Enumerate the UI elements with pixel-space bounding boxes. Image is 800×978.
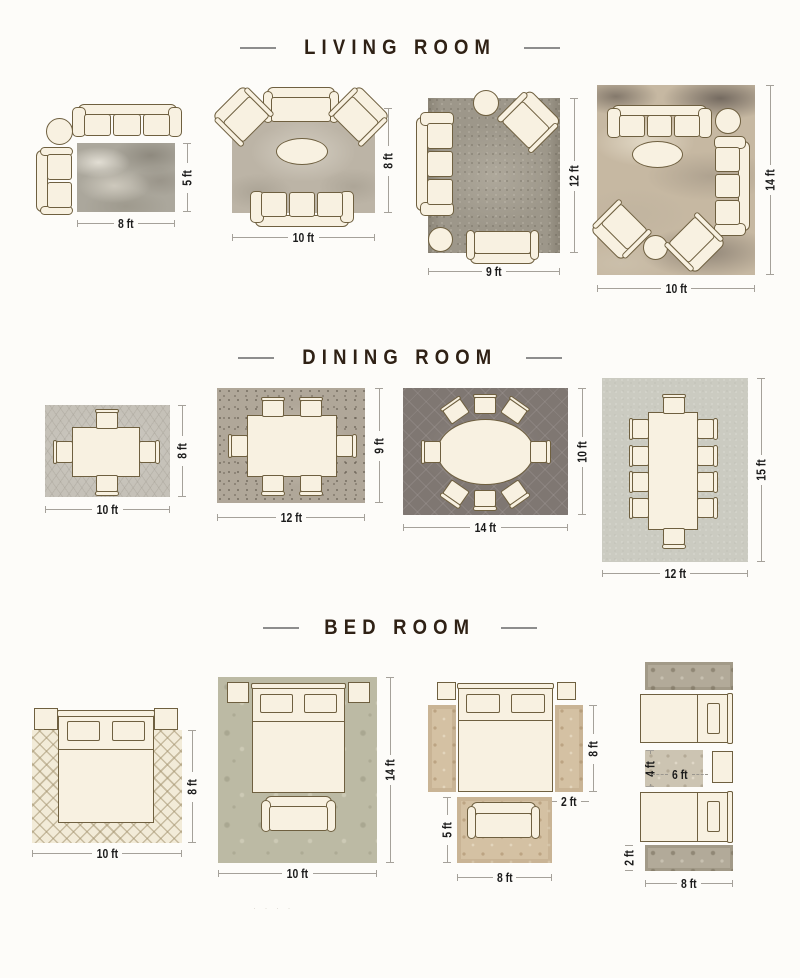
- section-title-dining-room: DINING ROOM: [0, 346, 800, 370]
- pillow: [511, 694, 544, 713]
- three-seat-sofa: [72, 104, 182, 138]
- dining-table: [247, 415, 337, 477]
- headboard: [727, 791, 733, 843]
- watermark: · · · ·: [253, 903, 294, 913]
- living-rug-8x5: [77, 143, 175, 212]
- height-dimension: 10 ft: [574, 388, 590, 515]
- bench-rug-height-dimension: 5 ft: [439, 797, 455, 863]
- nightstand: [227, 682, 249, 703]
- headboard: [457, 683, 554, 689]
- width-dimension: 10 ft: [218, 866, 377, 880]
- queen-bed: [458, 683, 553, 792]
- section-title-bed-room: BED ROOM: [0, 616, 800, 640]
- dining-chair: [632, 472, 649, 492]
- dining-chair: [530, 441, 547, 463]
- title-dash-left: [240, 47, 276, 50]
- width-dimension: 14 ft: [403, 520, 568, 534]
- height-dimension: 12 ft: [566, 98, 582, 253]
- nightstand: [348, 682, 370, 703]
- pillow: [707, 801, 721, 833]
- three-seat-sofa: [607, 105, 712, 139]
- section-title-text: LIVING ROOM: [304, 36, 496, 60]
- rug-size-guide-infographic: LIVING ROOM 5 ft 8 ft 8 ft 10 ft: [0, 0, 800, 978]
- dining-chair: [663, 528, 685, 545]
- runner-length-dimension: 8 ft: [645, 876, 733, 890]
- nightstand: [34, 708, 58, 730]
- height-dimension: 9 ft: [371, 388, 387, 503]
- dining-chair: [262, 400, 284, 417]
- dining-chair: [697, 419, 714, 439]
- nightstand: [437, 682, 456, 700]
- dining-chair: [300, 475, 322, 492]
- dining-chair: [424, 441, 441, 463]
- dining-chair: [632, 446, 649, 466]
- height-dimension: 14 ft: [382, 677, 398, 863]
- dining-chair: [336, 435, 353, 457]
- three-seat-sofa: [713, 136, 750, 236]
- round-side-table: [473, 90, 499, 116]
- runner-height-dimension: 8 ft: [585, 705, 601, 792]
- round-side-table: [715, 108, 741, 134]
- title-dash-right: [524, 47, 560, 50]
- runner-width-dimension: 2 ft: [621, 845, 637, 871]
- height-dimension: 8 ft: [184, 730, 200, 843]
- nightstand: [712, 751, 733, 783]
- loveseat: [263, 87, 339, 124]
- round-side-table: [428, 227, 453, 252]
- width-dimension: 12 ft: [602, 566, 748, 580]
- dining-chair: [96, 412, 118, 429]
- dining-chair: [697, 472, 714, 492]
- dining-chair: [56, 441, 73, 463]
- height-dimension: 15 ft: [753, 378, 769, 562]
- three-seat-sofa: [416, 112, 455, 216]
- bench-rug-width-dimension: 8 ft: [457, 870, 552, 884]
- pillow: [304, 694, 337, 713]
- nightstand: [154, 708, 178, 730]
- twin-bed: [640, 792, 733, 842]
- dining-chair: [632, 498, 649, 518]
- runner-width-dimension: 2 ft: [549, 794, 589, 808]
- dining-table: [648, 412, 698, 530]
- dining-chair: [300, 400, 322, 417]
- dining-chair: [474, 490, 496, 507]
- height-dimension: 5 ft: [179, 143, 195, 212]
- twin-bed: [640, 694, 733, 743]
- width-dimension: 10 ft: [45, 502, 170, 516]
- headboard: [251, 683, 346, 689]
- queen-bed: [252, 683, 345, 793]
- width-dimension: 10 ft: [232, 230, 375, 244]
- dining-chair: [231, 435, 248, 457]
- height-dimension: 14 ft: [762, 85, 778, 275]
- dining-chair: [474, 397, 496, 414]
- dining-chair: [139, 441, 156, 463]
- oval-coffee-table: [632, 141, 683, 168]
- bedroom-bench: [261, 796, 336, 833]
- nightstand: [557, 682, 576, 700]
- three-seat-sofa: [250, 190, 354, 227]
- section-title-text: BED ROOM: [325, 616, 476, 640]
- oval-dining-table: [437, 419, 534, 485]
- headboard: [727, 693, 733, 744]
- rug-width-dimension: 6 ft: [652, 767, 708, 781]
- title-dash-left: [238, 357, 274, 360]
- dining-chair: [697, 446, 714, 466]
- dining-chair: [632, 419, 649, 439]
- dining-chair: [663, 397, 685, 414]
- queen-bed: [58, 710, 154, 823]
- height-dimension: 8 ft: [380, 108, 396, 213]
- dining-chair: [262, 475, 284, 492]
- title-dash-right: [526, 357, 562, 360]
- bedroom-bench: [467, 802, 540, 840]
- round-side-table: [46, 118, 73, 145]
- runner-rug-top: [645, 662, 733, 690]
- title-dash-left: [263, 627, 299, 630]
- dining-chair: [96, 475, 118, 492]
- runner-rug-right: [555, 705, 583, 792]
- pillow: [260, 694, 293, 713]
- width-dimension: 10 ft: [32, 846, 182, 860]
- headboard: [57, 710, 155, 717]
- pillow: [707, 703, 721, 734]
- runner-rug-left: [428, 705, 456, 792]
- dining-table: [72, 427, 140, 477]
- dining-chair: [697, 498, 714, 518]
- width-dimension: 10 ft: [597, 281, 755, 295]
- round-side-table: [643, 235, 668, 260]
- runner-rug-bottom: [645, 845, 733, 871]
- loveseat: [36, 147, 74, 215]
- width-dimension: 12 ft: [217, 510, 365, 524]
- bench-loveseat: [466, 229, 539, 264]
- section-title-text: DINING ROOM: [302, 346, 497, 370]
- height-dimension: 8 ft: [174, 405, 190, 497]
- section-title-living-room: LIVING ROOM: [0, 36, 800, 60]
- width-dimension: 8 ft: [77, 216, 175, 230]
- width-dimension: 9 ft: [428, 264, 560, 278]
- oval-coffee-table: [276, 138, 328, 165]
- title-dash-right: [501, 627, 537, 630]
- pillow: [112, 721, 146, 741]
- pillow: [466, 694, 499, 713]
- pillow: [67, 721, 101, 741]
